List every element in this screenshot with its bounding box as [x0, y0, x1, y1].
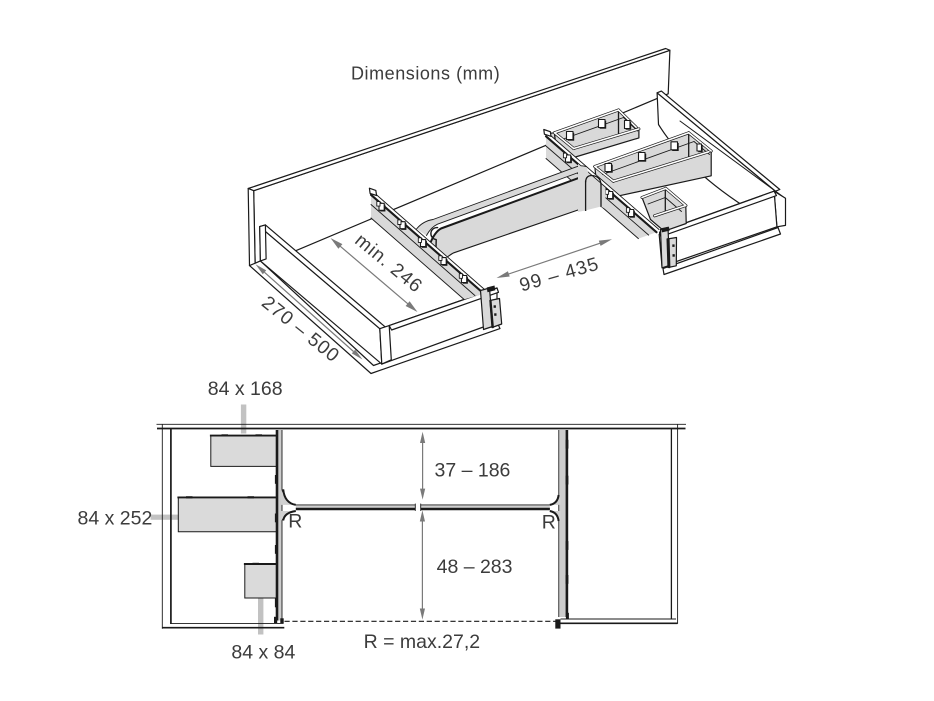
- svg-text:R = max.27,2: R = max.27,2: [364, 631, 481, 653]
- svg-text:37 – 186: 37 – 186: [435, 460, 511, 482]
- svg-text:R: R: [288, 511, 302, 533]
- svg-text:R: R: [542, 512, 556, 534]
- svg-text:48 – 283: 48 – 283: [437, 556, 513, 578]
- svg-text:84 x 84: 84 x 84: [231, 642, 295, 664]
- svg-text:84 x 252: 84 x 252: [77, 508, 152, 530]
- svg-text:Dimensions (mm): Dimensions (mm): [351, 64, 500, 84]
- svg-text:84 x 168: 84 x 168: [208, 378, 283, 400]
